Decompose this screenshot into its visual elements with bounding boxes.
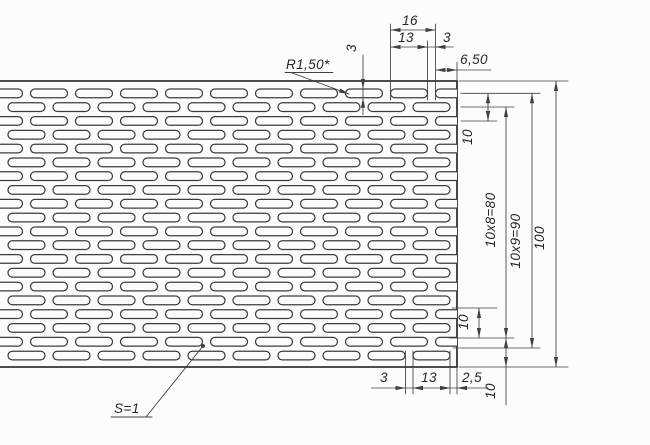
dim-label-gap-3-bottom: 3 <box>380 370 388 385</box>
dim-label-span-80: 10x8=80 <box>483 192 498 247</box>
slot-cut-open <box>436 255 457 264</box>
slot-cut-open <box>436 227 458 236</box>
slot-cut-open <box>436 337 458 346</box>
engineering-drawing-sheet: 161336,503132,53101010x8=801010x9=90100R… <box>0 0 650 445</box>
dim-label-margin-10-bot: 10 <box>483 383 498 399</box>
leader-dot <box>201 344 205 348</box>
slot-cut-open <box>436 172 457 181</box>
slot-cut-open <box>436 117 457 126</box>
slot-cut-open <box>436 144 458 153</box>
dim-label-edge-slot-650: 6,50 <box>460 52 488 67</box>
note-label-thickness-note: S=1 <box>114 401 140 416</box>
dim-label-pitch-16: 16 <box>402 13 418 28</box>
dim-label-slot-13-top: 13 <box>398 30 414 45</box>
note-label-radius-note: R1,50* <box>286 57 330 72</box>
dim-label-height-100: 100 <box>532 226 547 250</box>
dim-label-span-90: 10x9=90 <box>508 213 523 268</box>
dim-label-slot-width-3: 3 <box>344 44 359 52</box>
slot-cut-open <box>436 199 458 208</box>
slot-cut-open <box>436 310 458 319</box>
dim-label-slot-13-bottom: 13 <box>421 370 437 385</box>
drawing-canvas: 161336,503132,53101010x8=801010x9=90100R… <box>0 0 650 445</box>
slot-cut-open <box>436 89 458 98</box>
slot-cut-open <box>436 282 457 291</box>
dim-label-edge-margin-25: 2,5 <box>461 370 482 385</box>
dim-label-row-pitch-low: 10 <box>456 314 471 330</box>
dim-label-gap-3-top: 3 <box>443 30 451 45</box>
dim-label-row-pitch-top: 10 <box>460 129 475 145</box>
